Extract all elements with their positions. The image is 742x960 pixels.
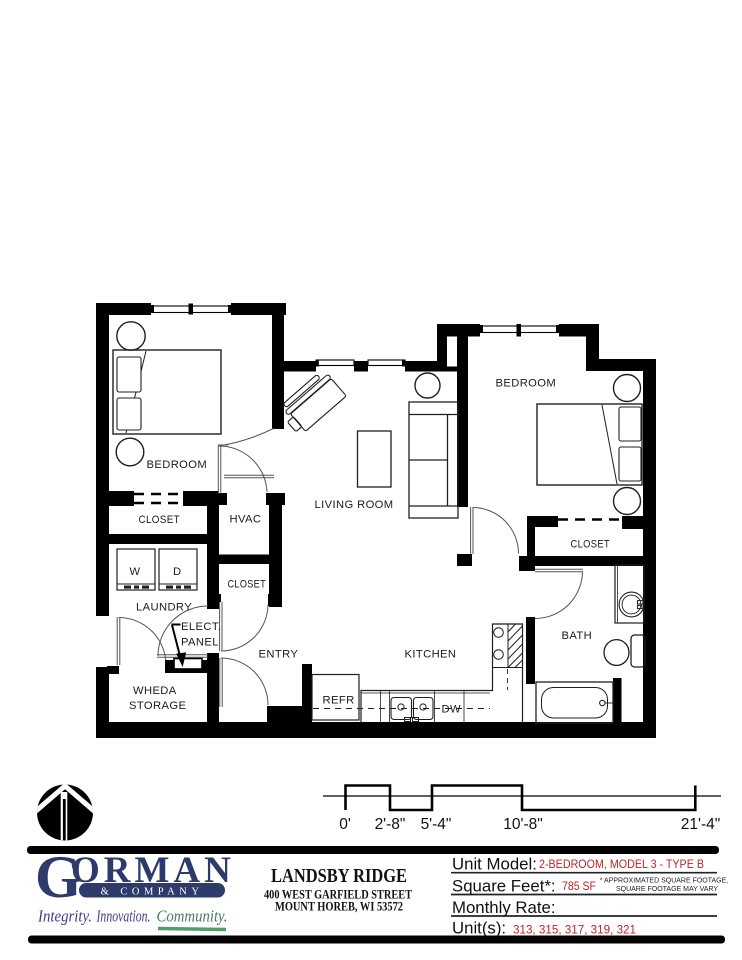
svg-text:KITCHEN: KITCHEN [405, 649, 457, 661]
svg-text:CLOSET: CLOSET [228, 579, 267, 591]
svg-text:& COMPANY: & COMPANY [101, 887, 204, 898]
svg-text:5'-4": 5'-4" [421, 816, 452, 833]
svg-text:CLOSET: CLOSET [139, 514, 181, 526]
svg-text:Community.: Community. [157, 907, 228, 926]
svg-text:LIVING ROOM: LIVING ROOM [315, 499, 394, 511]
svg-text:ELECT.: ELECT. [181, 621, 221, 633]
svg-text:Unit(s):: Unit(s): [452, 919, 506, 938]
svg-text:HVAC: HVAC [230, 514, 262, 526]
svg-text:W: W [130, 566, 141, 578]
svg-text:LAUNDRY: LAUNDRY [136, 602, 192, 614]
svg-text:21'-4": 21'-4" [681, 816, 720, 833]
svg-text:LANDSBY RIDGE: LANDSBY RIDGE [271, 866, 407, 887]
svg-text:2-BEDROOM, MODEL 3 - TYPE B: 2-BEDROOM, MODEL 3 - TYPE B [539, 857, 704, 871]
svg-text:0': 0' [339, 816, 351, 833]
svg-text:Square Feet*:: Square Feet*: [452, 876, 556, 895]
svg-text:BEDROOM: BEDROOM [496, 378, 557, 390]
svg-text:10'-8": 10'-8" [503, 816, 542, 833]
svg-text:REFR: REFR [323, 695, 355, 707]
svg-text:D: D [173, 566, 181, 578]
svg-text:785 SF: 785 SF [562, 879, 596, 893]
svg-text:ENTRY: ENTRY [259, 649, 299, 661]
svg-text:BEDROOM: BEDROOM [147, 459, 208, 471]
svg-text:DW: DW [442, 704, 461, 716]
svg-text:Innovation.: Innovation. [96, 907, 151, 926]
svg-text:CLOSET: CLOSET [571, 539, 611, 551]
svg-text:2'-8": 2'-8" [375, 816, 406, 833]
svg-text:STORAGE: STORAGE [129, 700, 186, 712]
svg-text:Integrity.: Integrity. [37, 907, 92, 926]
svg-text:Monthly Rate:: Monthly Rate: [452, 898, 556, 917]
svg-text:MOUNT HOREB, WI 53572: MOUNT HOREB, WI 53572 [275, 900, 403, 914]
svg-text:BATH: BATH [562, 630, 593, 642]
svg-text:313, 315, 317, 319, 321: 313, 315, 317, 319, 321 [513, 923, 636, 937]
svg-text:Unit Model:: Unit Model: [452, 855, 537, 874]
svg-text:SQUARE FOOTAGE MAY VARY: SQUARE FOOTAGE MAY VARY [616, 886, 718, 893]
svg-text:* APPROXIMATED SQUARE FOOTAGE,: * APPROXIMATED SQUARE FOOTAGE, [600, 878, 729, 885]
svg-text:PANEL: PANEL [181, 637, 219, 649]
svg-text:WHEDA: WHEDA [133, 685, 177, 697]
